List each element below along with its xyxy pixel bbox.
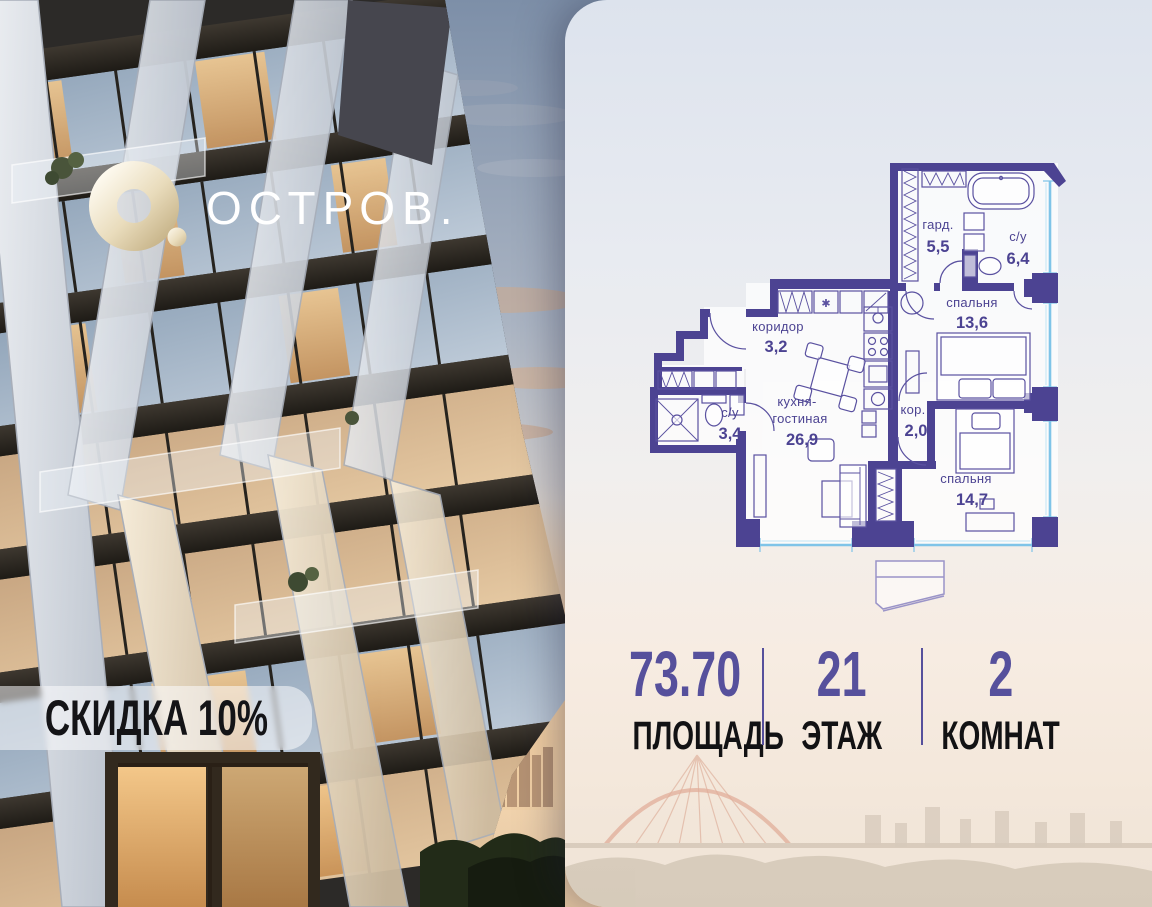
stat-floor-value: 21 [817, 642, 867, 706]
room-bath1-area: 6,4 [1007, 250, 1031, 268]
room-kitchen-name2: гостиная [772, 411, 827, 426]
stat-floor-label: ЭТАЖ [802, 716, 883, 756]
stat-area-value: 73.70 [629, 642, 741, 706]
room-bedroom2-name: спальня [940, 471, 991, 486]
trees [420, 833, 565, 907]
floorplan: ✱ [650, 155, 1070, 625]
room-wardrobe-name: гард. [922, 217, 953, 232]
room-corridor-name: коридор [752, 319, 804, 334]
promo-banner: ОСТРОВ. СКИДКА 10% [0, 0, 1152, 907]
stat-rooms-label: КОМНАТ [942, 716, 1060, 756]
room-wardrobe-area: 5,5 [927, 238, 950, 256]
stat-floor: 21 ЭТАЖ [757, 642, 927, 756]
stat-area: 73.70 ПЛОЩАДЬ [600, 642, 770, 756]
balcony [876, 561, 944, 611]
stat-rooms-value: 2 [989, 642, 1014, 706]
apartment-card[interactable]: ✱ [565, 0, 1152, 907]
room-bedroom1-area: 13,6 [956, 314, 988, 332]
room-bath2-name: с/у [721, 405, 739, 420]
room-bedroom2-area: 14,7 [956, 491, 988, 509]
room-corridor-area: 3,2 [765, 338, 788, 356]
room-bath1-name: с/у [1009, 229, 1027, 244]
washer-symbol: ✱ [821, 298, 830, 310]
stat-rooms: 2 КОМНАТ [916, 642, 1086, 756]
room-kitchen-area: 26,9 [786, 431, 818, 449]
room-corridor2-name: кор. [900, 402, 925, 417]
o-ring-icon [103, 175, 165, 237]
room-bedroom1-name: спальня [946, 295, 997, 310]
discount-badge: СКИДКА 10% [0, 686, 312, 750]
room-kitchen-name1: кухня- [777, 394, 816, 409]
o-dot-icon [168, 228, 187, 247]
room-bath2-area: 3,4 [719, 425, 743, 443]
brand-name: ОСТРОВ. [206, 181, 459, 235]
roof-block [338, 0, 452, 165]
room-corridor2-area: 2,0 [905, 422, 928, 440]
discount-text: СКИДКА 10% [44, 689, 267, 747]
